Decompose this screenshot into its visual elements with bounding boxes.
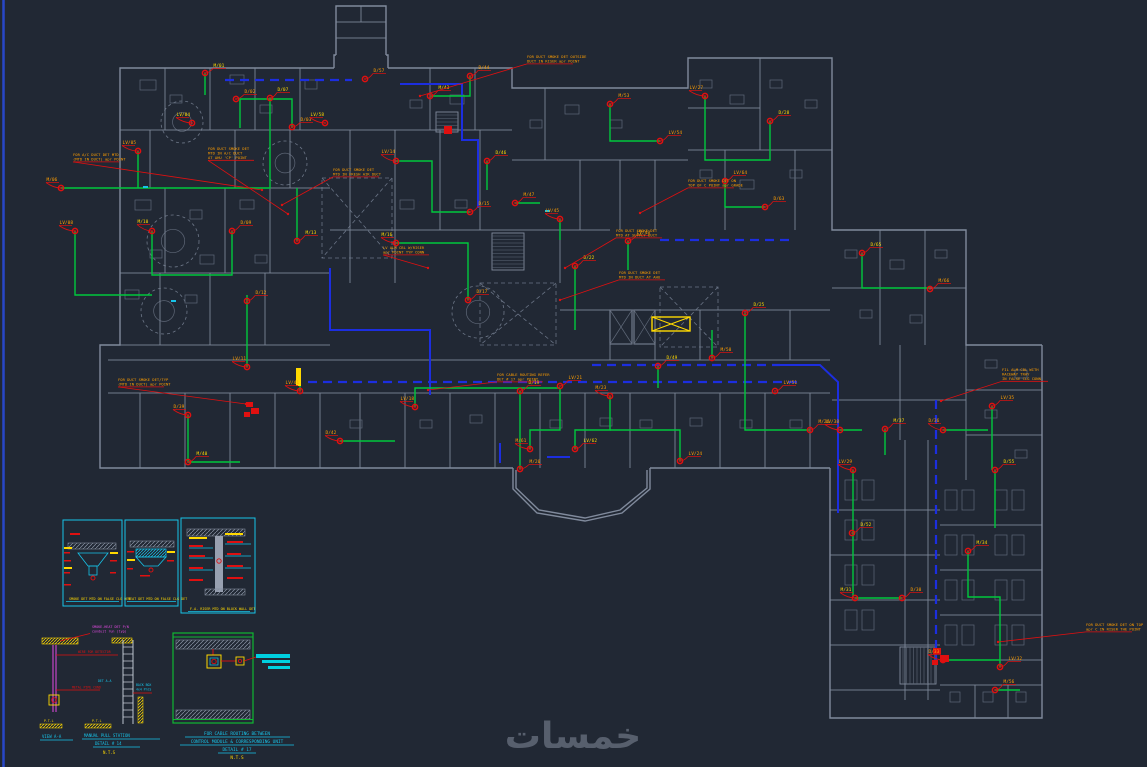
annotation-note-line: TOP OF C POINT apr GRADE: [688, 182, 744, 187]
magenta-note-line1: SMOKE-HEAT DET P/N: [92, 625, 129, 629]
note-leader-arrow: [997, 641, 999, 643]
device-tag: D/07: [278, 87, 289, 93]
device-tag: D/30: [911, 587, 922, 593]
note-leader-arrow: [427, 389, 429, 391]
device-tag: M/06: [47, 177, 58, 183]
device-tag: LV/58: [311, 112, 325, 118]
annotation-note-line: IN FALSE CLG CONN: [1002, 376, 1042, 381]
note-leader-arrow: [639, 212, 641, 214]
device-tag: D/28: [779, 110, 790, 116]
device-tag: D/39: [174, 404, 185, 410]
device-tag: LV/62: [584, 438, 598, 444]
device-tag: LV/51: [784, 380, 798, 386]
detail-17-label: DETAIL # 17: [222, 747, 251, 753]
routing-caption-line1: FOR CABLE ROUTING BETWEEN: [204, 731, 270, 737]
back-box-label1: BACK BOX: [136, 683, 151, 687]
sheet-background: [0, 0, 1147, 767]
annotation-note-line: (MTD IN DUCT) apr POINT: [73, 156, 126, 161]
device-tag: LV/04: [177, 112, 191, 118]
device-tag: LV/27: [690, 85, 704, 91]
note-leader-arrow: [419, 95, 421, 97]
note-leader-arrow: [559, 299, 561, 301]
note-leader-arrow: [261, 189, 263, 191]
device-tag: D/46: [496, 150, 507, 156]
back-box-label2: 4x4 PnlS: [136, 688, 151, 692]
device-tag: M/31: [841, 587, 852, 593]
device-tag: D/42: [326, 430, 337, 436]
note-leader-arrow: [281, 204, 283, 206]
annotation-note-line: MTD AT SUPPLY DUCT: [616, 232, 658, 237]
detail-b-title: HEAT DET MTD ON FALSE CLG DET: [128, 597, 187, 601]
note-leader-arrow: [287, 213, 289, 215]
note-leader-arrow: [245, 403, 247, 405]
device-tag: LV/54: [669, 130, 683, 136]
manual-pull-station-label: MANUAL PULL STATION: [84, 733, 130, 738]
device-tag: M/40: [197, 451, 208, 457]
view-aa-label: VIEW A-A: [42, 734, 62, 739]
device-tag: D/49: [667, 355, 678, 361]
cad-sheet: M/01D/02D/03LV/04LV/05M/06D/07LV/08D/09M…: [0, 0, 1147, 767]
device-tag: D/33: [929, 649, 940, 655]
device-tag: M/37: [894, 418, 905, 424]
device-tag: LV/18: [401, 396, 415, 402]
device-tag: LV/38: [826, 419, 840, 425]
device-tag: D/25: [754, 302, 765, 308]
device-tag: LV/41: [286, 380, 300, 386]
device-tag: D/36: [929, 418, 940, 424]
khamsat-watermark: خمسات: [505, 716, 641, 757]
device-tag: LV/11: [233, 356, 247, 362]
device-tag: LV/32: [1009, 656, 1023, 662]
detail-a-title: SMOKE DET MTD ON FALSE CLG DET: [69, 597, 130, 601]
device-tag: LV/35: [1001, 395, 1015, 401]
device-tag: LV/21: [569, 375, 583, 381]
device-tag: M/34: [977, 540, 988, 546]
device-tag: LV/29: [839, 459, 853, 465]
note-leader-arrow: [427, 267, 429, 269]
note-leader-arrow: [564, 267, 566, 269]
device-tag: M/13: [306, 230, 317, 236]
annotation-note-line: DUCT IN RISER apr POINT: [527, 58, 580, 63]
device-tag: M/53: [619, 93, 630, 99]
routing-caption-line2: CONTROL MODULE & CORRESPONDING UNIT: [191, 739, 284, 745]
annotation-note-line: MTD IN DUCT AT AHU: [619, 274, 661, 279]
annotation-note-line: apr POINT TYP CONN: [383, 249, 425, 254]
ptl-label-1: P.T.L: [44, 719, 54, 723]
red-cluster: [932, 660, 938, 665]
device-tag: M/66: [939, 278, 950, 284]
device-tag: LV/64: [734, 170, 748, 176]
device-tag: M/20: [530, 459, 541, 465]
device-tag: D/09: [241, 220, 252, 226]
det-aa-label: DET A-A: [98, 679, 112, 683]
device-tag: D/17: [477, 289, 488, 295]
device-tag: LV/14: [382, 149, 396, 155]
magenta-note-line2: conduit run (typ): [92, 630, 127, 634]
device-tag: D/63: [774, 196, 785, 202]
annotation-note-line: DET # 17 apr POINT: [497, 376, 539, 381]
note-leader-arrow: [940, 400, 942, 402]
device-tag: D/57: [374, 68, 385, 74]
device-tag: M/56: [1004, 679, 1015, 685]
device-tag: M/47: [524, 192, 535, 198]
device-tag: D/65: [871, 242, 882, 248]
detail-c-title: F.A. RISER MTD ON BLOCK WALL DET: [190, 607, 255, 611]
device-tag: D/44: [479, 65, 490, 71]
detail-14-label: DETAIL # 14: [95, 741, 122, 746]
device-tag: M/50: [721, 347, 732, 353]
device-tag: D/52: [861, 522, 872, 528]
device-tag: M/23: [596, 385, 607, 391]
nts-label-2: N.T.S: [230, 755, 244, 761]
device-tag: M/01: [214, 63, 225, 69]
device-tag: LV/24: [689, 451, 703, 457]
annotation-note-line: (MTD IN DUCT) apr POINT: [118, 381, 171, 386]
cyan-tick: [171, 300, 176, 302]
cyan-tick: [143, 186, 148, 188]
device-tag: M/10: [138, 219, 149, 225]
device-tag: D/55: [1004, 459, 1015, 465]
device-tag: LV/45: [546, 208, 560, 214]
device-tag: M/16: [382, 232, 393, 238]
pipe-label: METAL PIPE COND: [72, 686, 101, 690]
red-cluster: [244, 412, 250, 417]
device-tag: LV/08: [60, 220, 74, 226]
device-tag: LV/05: [123, 140, 137, 146]
annotation-note-line: MTD IN FRESH AIR DUCT: [333, 171, 382, 176]
nts-label-1: N.T.S: [103, 750, 116, 755]
device-tag: D/15: [479, 201, 490, 207]
red-cluster: [444, 126, 452, 134]
annotation-note-line: AT AHU 'CP' POINT: [208, 155, 248, 160]
annotation-note-line: apr C IN RISER THE POINT: [1086, 626, 1142, 631]
wire-label: WIRE FOR DETECTOR: [78, 650, 111, 654]
device-tag: D/02: [245, 89, 256, 95]
device-tag: M/61: [516, 438, 527, 444]
ptl-label-2: P.T.L: [92, 719, 102, 723]
device-tag: D/12: [256, 290, 267, 296]
red-cluster: [251, 408, 259, 414]
